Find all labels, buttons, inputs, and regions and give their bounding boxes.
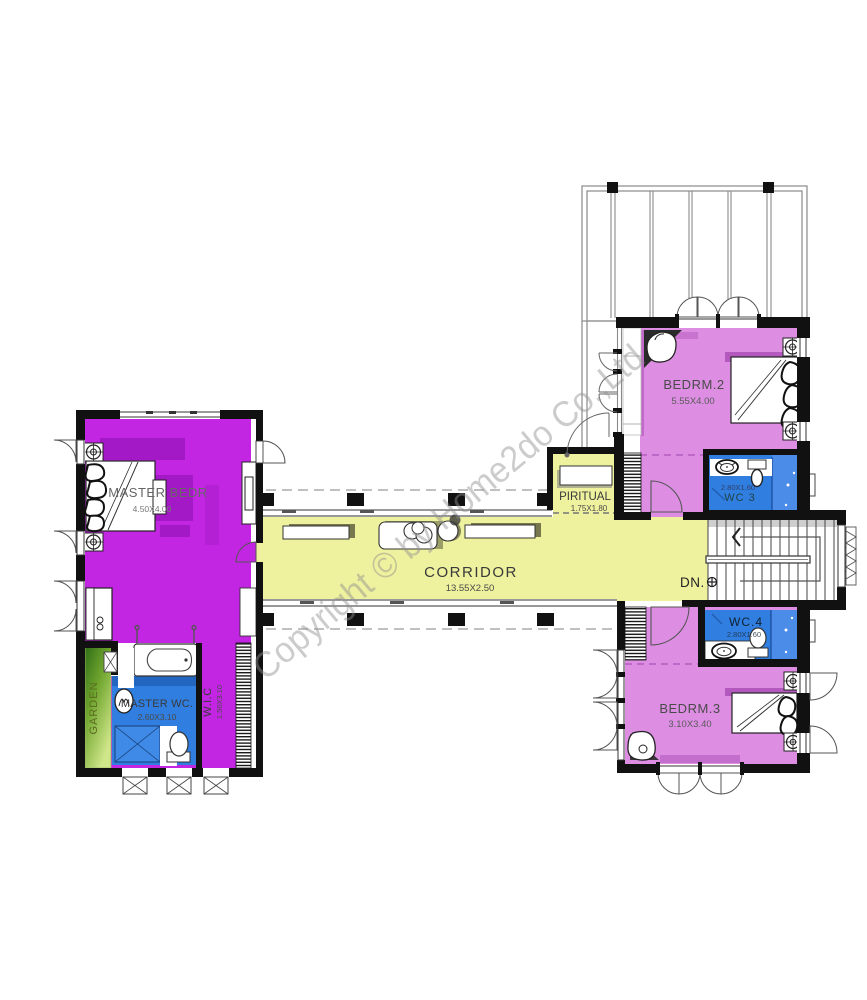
svg-text:GARDEN: GARDEN <box>88 681 100 734</box>
svg-text:13.55X2.50: 13.55X2.50 <box>446 583 495 594</box>
svg-text:BEDRM.2: BEDRM.2 <box>663 377 724 392</box>
svg-text:2.60X3.10: 2.60X3.10 <box>138 712 177 722</box>
svg-text:MASTER BEDR: MASTER BEDR <box>108 485 207 500</box>
svg-text:W.I.C: W.I.C <box>202 687 214 716</box>
svg-text:PIRITUAL: PIRITUAL <box>559 491 611 503</box>
svg-text:WC.4: WC.4 <box>729 615 763 629</box>
svg-text:5.55X4.00: 5.55X4.00 <box>671 396 714 407</box>
svg-text:CORRIDOR: CORRIDOR <box>424 564 518 581</box>
svg-text:WC 3: WC 3 <box>724 492 756 504</box>
svg-text:2.80X1.60: 2.80X1.60 <box>727 630 761 639</box>
svg-text:MASTER WC.: MASTER WC. <box>121 698 193 710</box>
svg-text:1.75X1.80: 1.75X1.80 <box>571 504 608 513</box>
svg-text:DN.: DN. <box>680 575 705 590</box>
svg-text:3.10X3.40: 3.10X3.40 <box>668 719 711 730</box>
svg-text:1.50X3.10: 1.50X3.10 <box>215 685 224 719</box>
svg-text:4.50X4.00: 4.50X4.00 <box>133 504 172 514</box>
svg-text:BEDRM.3: BEDRM.3 <box>659 701 720 716</box>
svg-text:2.80X1.60: 2.80X1.60 <box>721 483 755 492</box>
